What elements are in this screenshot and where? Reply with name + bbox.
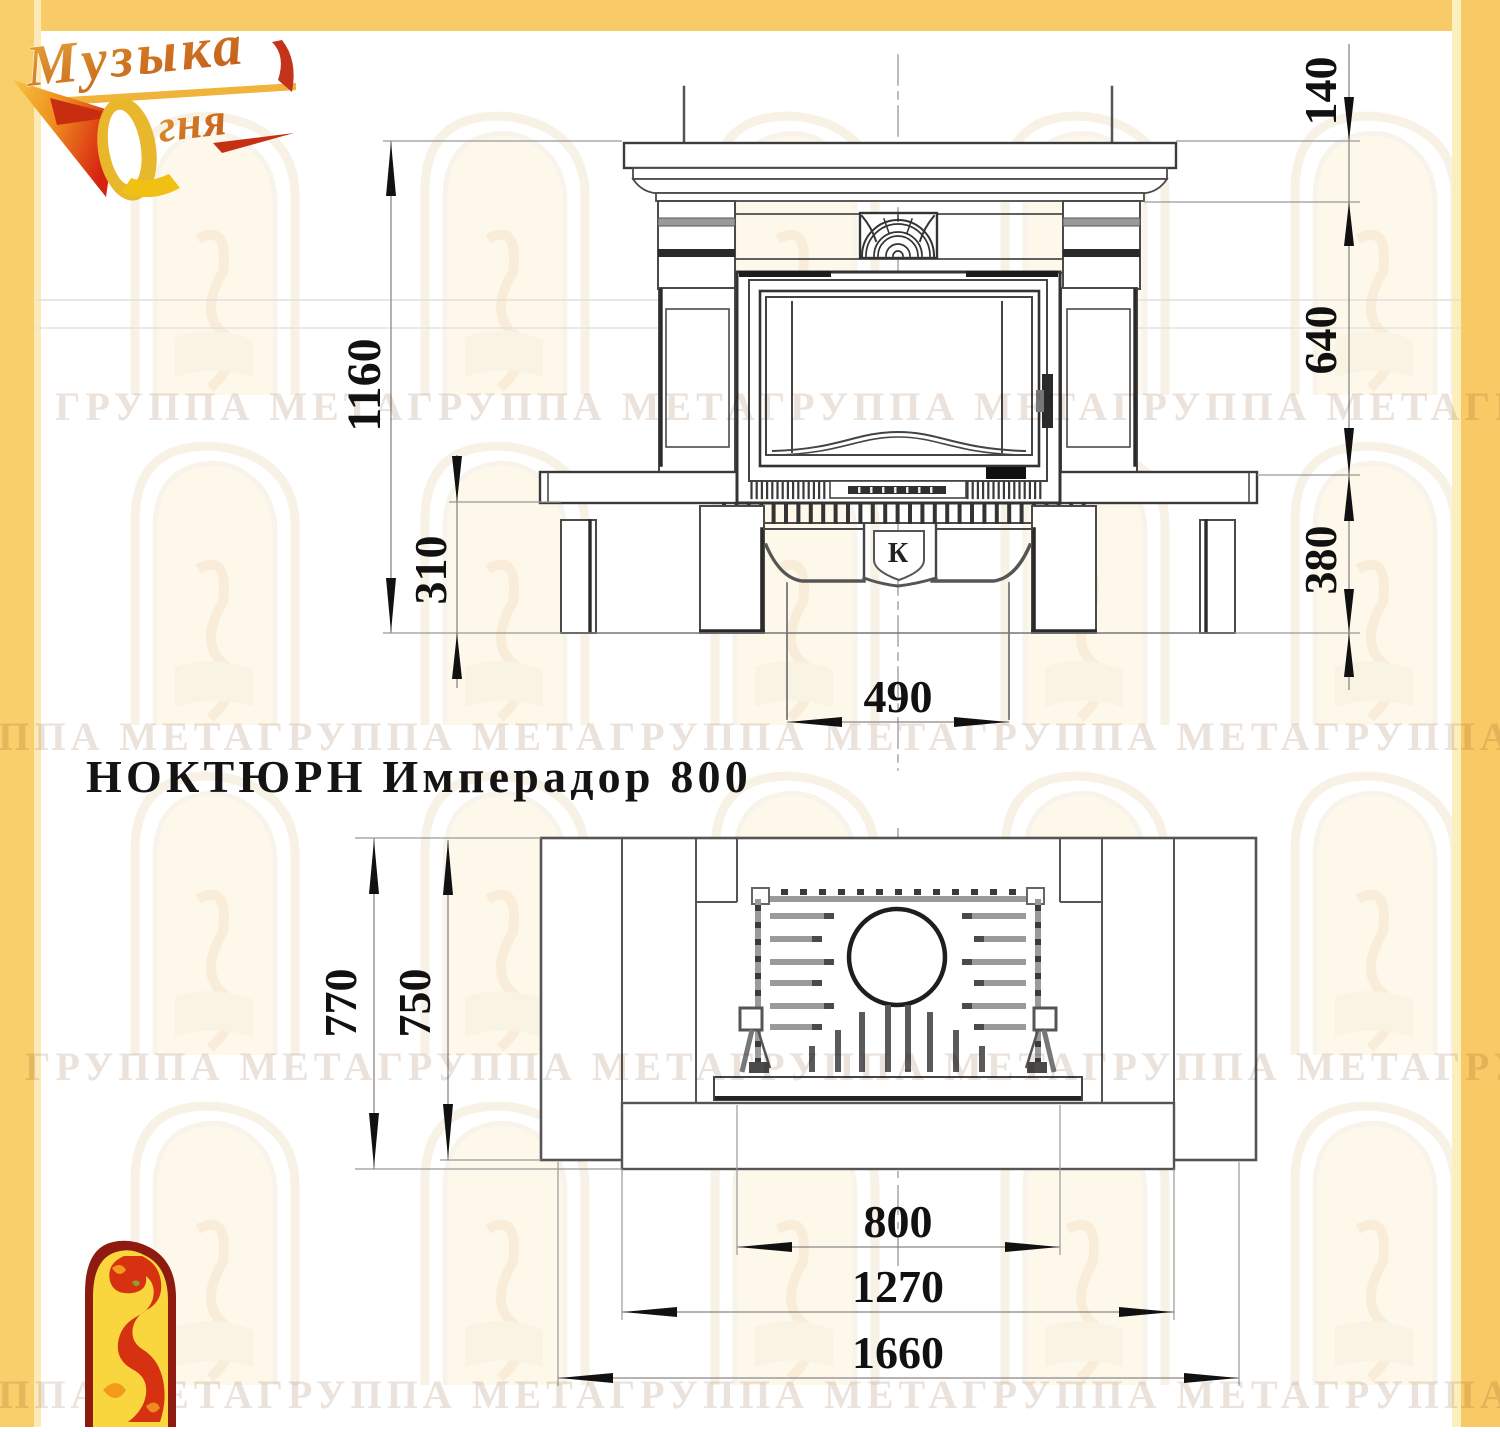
svg-text:К: К	[888, 538, 909, 569]
svg-text:640: 640	[1295, 306, 1346, 375]
svg-text:1660: 1660	[852, 1327, 944, 1378]
svg-text:ГРУППА МЕТАГРУППА МЕТАГРУППА М: ГРУППА МЕТАГРУППА МЕТАГРУППА МЕТАГРУППА …	[0, 714, 1500, 759]
svg-text:380: 380	[1295, 526, 1346, 595]
svg-text:140: 140	[1295, 57, 1346, 126]
svg-text:800: 800	[864, 1196, 933, 1247]
svg-text:ГРУППА МЕТАГРУППА МЕТАГРУППА М: ГРУППА МЕТАГРУППА МЕТАГРУППА МЕТАГРУППА …	[25, 1044, 1500, 1089]
svg-text:1270: 1270	[852, 1261, 944, 1312]
svg-text:750: 750	[389, 969, 440, 1038]
svg-text:770: 770	[315, 969, 366, 1038]
svg-text:ГРУППА МЕТАГРУППА МЕТАГРУППА М: ГРУППА МЕТАГРУППА МЕТАГРУППА МЕТАГРУППА …	[55, 384, 1500, 429]
svg-text:310: 310	[405, 536, 456, 605]
svg-text:ГРУППА МЕТАГРУППА МЕТАГРУППА М: ГРУППА МЕТАГРУППА МЕТАГРУППА МЕТАГРУППА …	[0, 1372, 1500, 1417]
